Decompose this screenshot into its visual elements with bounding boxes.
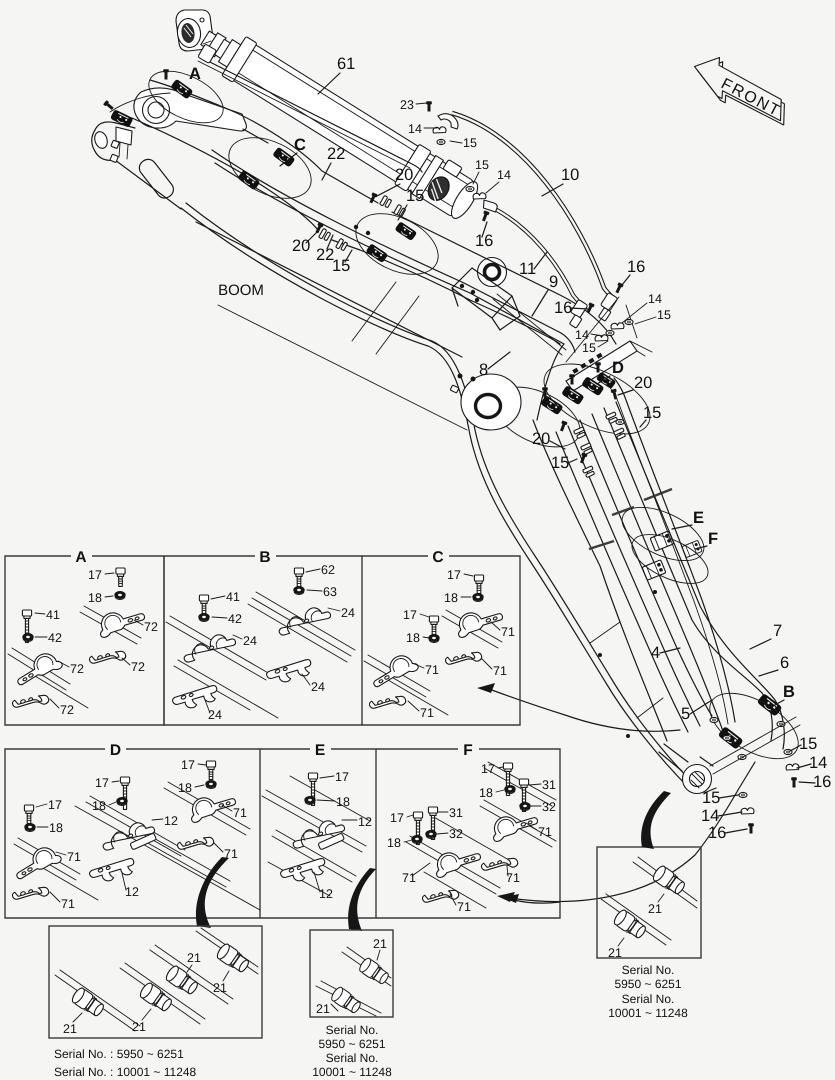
svg-text:A: A bbox=[75, 549, 86, 566]
svg-text:24: 24 bbox=[341, 606, 355, 620]
svg-text:7: 7 bbox=[773, 622, 782, 640]
svg-text:71: 71 bbox=[538, 825, 552, 839]
svg-text:17: 17 bbox=[481, 762, 495, 776]
svg-text:71: 71 bbox=[420, 706, 434, 720]
svg-text:Serial No.: Serial No. bbox=[622, 992, 675, 1006]
svg-text:17: 17 bbox=[390, 811, 404, 825]
svg-text:21: 21 bbox=[187, 951, 201, 965]
svg-text:15: 15 bbox=[702, 789, 720, 807]
svg-text:41: 41 bbox=[46, 608, 60, 622]
svg-text:12: 12 bbox=[319, 887, 333, 901]
svg-text:5: 5 bbox=[681, 705, 690, 723]
svg-text:4: 4 bbox=[651, 644, 660, 662]
svg-text:63: 63 bbox=[323, 585, 337, 599]
svg-text:E: E bbox=[315, 742, 325, 759]
svg-text:71: 71 bbox=[457, 900, 471, 914]
svg-text:A: A bbox=[189, 65, 201, 83]
svg-text:18: 18 bbox=[479, 786, 493, 800]
svg-text:71: 71 bbox=[67, 850, 81, 864]
svg-text:20: 20 bbox=[634, 374, 652, 392]
svg-text:21: 21 bbox=[648, 902, 662, 916]
svg-text:20: 20 bbox=[395, 166, 413, 184]
svg-text:14: 14 bbox=[648, 292, 662, 306]
svg-text:71: 71 bbox=[233, 806, 247, 820]
svg-text:41: 41 bbox=[226, 590, 240, 604]
svg-text:12: 12 bbox=[125, 885, 139, 899]
svg-text:E: E bbox=[693, 509, 704, 527]
svg-text:B: B bbox=[259, 549, 270, 566]
svg-text:15: 15 bbox=[551, 454, 569, 472]
svg-text:42: 42 bbox=[48, 631, 62, 645]
svg-text:C: C bbox=[432, 549, 443, 566]
svg-text:20: 20 bbox=[292, 237, 310, 255]
svg-text:17: 17 bbox=[88, 568, 102, 582]
svg-text:15: 15 bbox=[657, 308, 671, 322]
svg-text:24: 24 bbox=[243, 634, 257, 648]
svg-text:F: F bbox=[463, 742, 472, 759]
svg-text:Serial No. : 5950 ~ 6251: Serial No. : 5950 ~ 6251 bbox=[54, 1047, 184, 1061]
svg-text:12: 12 bbox=[358, 815, 372, 829]
svg-text:14: 14 bbox=[809, 754, 827, 772]
svg-text:72: 72 bbox=[144, 620, 158, 634]
svg-text:72: 72 bbox=[70, 662, 84, 676]
svg-text:17: 17 bbox=[403, 608, 417, 622]
svg-text:71: 71 bbox=[501, 625, 515, 639]
svg-text:8: 8 bbox=[479, 361, 488, 379]
svg-text:72: 72 bbox=[60, 703, 74, 717]
svg-text:71: 71 bbox=[425, 663, 439, 677]
svg-text:18: 18 bbox=[49, 821, 63, 835]
svg-text:32: 32 bbox=[542, 800, 556, 814]
svg-text:16: 16 bbox=[813, 773, 831, 791]
svg-text:16: 16 bbox=[708, 824, 726, 842]
svg-text:32: 32 bbox=[449, 827, 463, 841]
svg-text:31: 31 bbox=[449, 806, 463, 820]
svg-text:14: 14 bbox=[575, 328, 589, 342]
svg-text:D: D bbox=[612, 359, 624, 377]
svg-text:21: 21 bbox=[608, 946, 622, 960]
svg-text:21: 21 bbox=[132, 1020, 146, 1034]
svg-text:20: 20 bbox=[532, 430, 550, 448]
svg-text:62: 62 bbox=[321, 563, 335, 577]
svg-text:18: 18 bbox=[406, 631, 420, 645]
svg-text:71: 71 bbox=[402, 871, 416, 885]
svg-text:15: 15 bbox=[643, 404, 661, 422]
svg-text:BOOM: BOOM bbox=[218, 282, 264, 299]
svg-text:17: 17 bbox=[95, 776, 109, 790]
svg-text:21: 21 bbox=[316, 1002, 330, 1016]
svg-text:14: 14 bbox=[497, 168, 511, 182]
svg-text:24: 24 bbox=[311, 680, 325, 694]
svg-text:D: D bbox=[110, 742, 121, 759]
svg-text:Serial No.: Serial No. bbox=[326, 1051, 379, 1065]
svg-text:16: 16 bbox=[475, 232, 493, 250]
svg-text:24: 24 bbox=[208, 708, 222, 722]
svg-text:12: 12 bbox=[164, 814, 178, 828]
svg-text:18: 18 bbox=[444, 591, 458, 605]
svg-text:18: 18 bbox=[92, 799, 106, 813]
svg-text:15: 15 bbox=[463, 136, 477, 150]
svg-text:15: 15 bbox=[582, 341, 596, 355]
svg-text:15: 15 bbox=[475, 158, 489, 172]
svg-text:16: 16 bbox=[627, 258, 645, 276]
svg-text:21: 21 bbox=[373, 937, 387, 951]
svg-text:17: 17 bbox=[335, 770, 349, 784]
svg-text:17: 17 bbox=[48, 798, 62, 812]
svg-text:Serial No. : 10001 ~ 11248: Serial No. : 10001 ~ 11248 bbox=[54, 1065, 197, 1079]
svg-text:F: F bbox=[708, 530, 718, 548]
svg-text:42: 42 bbox=[228, 612, 242, 626]
svg-text:B: B bbox=[783, 683, 795, 701]
svg-text:17: 17 bbox=[181, 758, 195, 772]
svg-text:9: 9 bbox=[549, 273, 558, 291]
svg-text:22: 22 bbox=[327, 145, 345, 163]
svg-text:5950 ~ 6251: 5950 ~ 6251 bbox=[614, 977, 681, 991]
svg-text:61: 61 bbox=[337, 55, 355, 73]
svg-text:21: 21 bbox=[213, 981, 227, 995]
svg-text:Serial No.: Serial No. bbox=[326, 1023, 379, 1037]
svg-text:21: 21 bbox=[63, 1022, 77, 1036]
svg-text:31: 31 bbox=[542, 778, 556, 792]
svg-text:6: 6 bbox=[780, 654, 789, 672]
svg-text:72: 72 bbox=[131, 660, 145, 674]
svg-text:Serial No.: Serial No. bbox=[622, 963, 675, 977]
svg-text:71: 71 bbox=[61, 897, 75, 911]
svg-text:71: 71 bbox=[493, 664, 507, 678]
svg-text:18: 18 bbox=[178, 781, 192, 795]
svg-text:5950 ~ 6251: 5950 ~ 6251 bbox=[318, 1037, 385, 1051]
svg-text:23: 23 bbox=[400, 98, 414, 112]
svg-text:14: 14 bbox=[701, 807, 719, 825]
svg-text:14: 14 bbox=[408, 122, 422, 136]
svg-text:17: 17 bbox=[447, 568, 461, 582]
svg-text:18: 18 bbox=[387, 836, 401, 850]
svg-text:10001 ~ 11248: 10001 ~ 11248 bbox=[312, 1065, 392, 1079]
svg-text:15: 15 bbox=[332, 257, 350, 275]
svg-text:18: 18 bbox=[336, 795, 350, 809]
svg-text:C: C bbox=[294, 136, 306, 154]
svg-text:10001 ~ 11248: 10001 ~ 11248 bbox=[608, 1006, 688, 1020]
svg-text:10: 10 bbox=[561, 166, 579, 184]
svg-text:15: 15 bbox=[406, 187, 424, 205]
svg-text:15: 15 bbox=[799, 735, 817, 753]
svg-text:18: 18 bbox=[88, 591, 102, 605]
